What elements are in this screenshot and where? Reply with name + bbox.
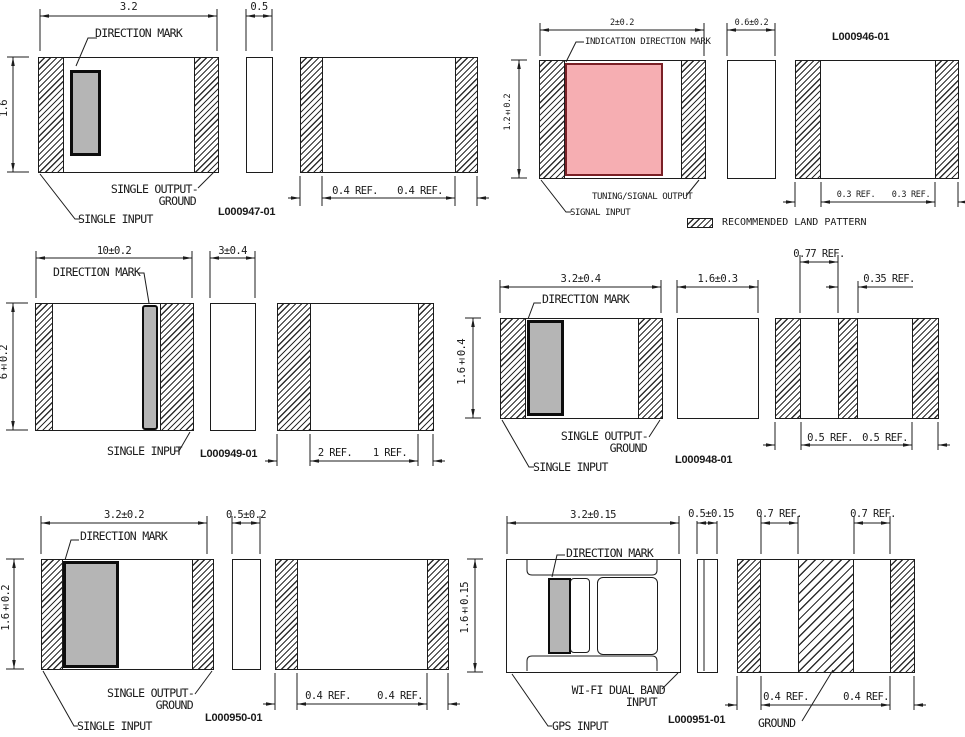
l000951-side-dim: 0.5±0.15 [683,508,739,520]
l000951-side-view [697,559,718,673]
land-pattern-legend-swatch [687,218,713,228]
l000948-land-pad-left [775,318,801,419]
l000951-land-pad-left [737,559,761,673]
l000947-input-label: SINGLE INPUT [78,213,153,226]
l000950-direction-mark-label: DIRECTION MARK [80,530,167,543]
l000949-input-label: SINGLE INPUT [107,445,182,458]
l000947-height-dim: 1.6 [0,100,10,117]
l000951-height-dim: 1.6±0.15 [459,582,471,633]
l000950-terminal-pad-right [192,559,214,670]
l000946-side-dim: 0.6±0.2 [727,18,776,28]
l000951-direction-mark-label: DIRECTION MARK [566,547,653,560]
l000950-width-dim: 3.2±0.2 [41,509,207,521]
l000949-land-pad-right [418,303,434,431]
l000947-width-dim: 3.2 [40,1,217,13]
l000951-land-dim-left: 0.4 REF. [761,691,811,703]
l000946-input-label: SIGNAL INPUT [570,208,630,218]
l000947-side-view [246,57,273,173]
l000951-land-pad-right [890,559,915,673]
land-pattern-legend-label: RECOMMENDED LAND PATTERN [722,217,867,228]
l000948-land-gap-dim: 0.77 REF. [785,248,853,260]
l000947-direction-mark [70,70,101,156]
l000946-terminal-pad-left [539,60,565,179]
l000948-land-pad-middle [838,318,858,419]
l000947-land-dim-left: 0.4 REF. [325,185,385,197]
l000950-land-pad-right [427,559,449,670]
l000951-land-gap-dim-left: 0.7 REF. [755,508,803,520]
l000950-side-dim: 0.5±0.2 [219,509,273,521]
l000948-direction-mark [527,320,564,416]
l000951-body-window-narrow [570,578,590,653]
l000946-direction-mark-label: INDICATION DIRECTION MARK [585,37,710,47]
l000946-land-dim-left: 0.3 REF. [832,190,880,200]
l000947-direction-mark-label: DIRECTION MARK [95,27,182,40]
l000951-land-pad-ground [798,559,854,673]
l000949-direction-mark [142,305,158,430]
l000949-terminal-pad-left [35,303,53,431]
l000946-land-pad-left [795,60,821,179]
l000947-part-number: L000947-01 [218,206,275,218]
l000949-land-dim-left: 2 REF. [310,447,360,459]
l000951-land-gap-dim-right: 0.7 REF. [849,508,897,520]
l000951-gps-input-label: GPS INPUT [552,720,608,733]
l000948-side-view [677,318,759,419]
l000949-land-dim-right: 1 REF. [365,447,415,459]
l000946-side-view [727,60,776,179]
l000950-land-dim-left: 0.4 REF. [303,690,353,702]
l000946-terminal-pad-right [681,60,706,179]
l000947-terminal-pad-left [38,57,64,173]
l000948-height-dim: 1.6±0.4 [456,339,468,385]
l000946-land-pad-right [935,60,959,179]
l000947-body-view [38,57,219,173]
l000951-ground-label: GROUND [758,717,795,730]
l000948-direction-mark-label: DIRECTION MARK [542,293,629,306]
l000951-land-dim-right: 0.4 REF. [841,691,891,703]
l000946-output-label: TUNING/SIGNAL OUTPUT [592,192,692,202]
l000949-part-number: L000949-01 [200,448,257,460]
l000950-side-view [232,559,261,670]
l000951-width-dim: 3.2±0.15 [507,509,679,521]
datasheet-drawing-sheet: 3.2 0.5 1.6 DIRECTION MARK SINGLE OUTPUT… [0,0,965,737]
l000948-part-number: L000948-01 [675,454,732,466]
l000949-land-pad-left [277,303,311,431]
l000950-direction-mark [63,561,119,668]
l000950-input-label: SINGLE INPUT [77,720,152,733]
l000946-indication-direction-mark [565,63,663,176]
l000950-land-pad-left [275,559,298,670]
l000948-side-dim: 1.6±0.3 [677,273,758,285]
l000951-direction-mark [548,578,571,654]
l000947-land-dim-right: 0.4 REF. [390,185,450,197]
l000950-part-number: L000950-01 [205,712,262,724]
l000946-width-dim: 2±0.2 [540,18,704,28]
l000949-side-dim: 3±0.4 [210,245,255,257]
l000946-land-dim-right: 0.3 REF. [887,190,935,200]
l000947-side-dim: 0.5 [240,1,278,13]
l000947-land-pad-left [300,57,323,173]
l000950-ground-label: GROUND [107,699,193,712]
l000947-ground-label: GROUND [110,195,196,208]
l000948-land-dim-left: 0.5 REF. [805,432,855,444]
l000948-land-middle-dim: 0.35 REF. [860,273,918,285]
l000951-body-window-wide [597,577,658,655]
l000950-land-dim-right: 0.4 REF. [375,690,425,702]
l000948-width-dim: 3.2±0.4 [500,273,661,285]
l000951-part-number: L000951-01 [668,714,725,726]
l000950-land-pattern [275,559,449,670]
l000947-land-pattern [300,57,478,173]
l000948-input-label: SINGLE INPUT [533,461,608,474]
l000947-terminal-pad-right [194,57,219,173]
l000949-height-dim: 6±0.2 [0,345,10,379]
l000946-part-number: L000946-01 [832,31,889,43]
l000948-land-dim-right: 0.5 REF. [860,432,910,444]
l000949-direction-mark-label: DIRECTION MARK [53,266,140,279]
l000948-terminal-pad-right [638,318,663,419]
l000949-width-dim: 10±0.2 [36,245,192,257]
l000949-side-view [210,303,256,431]
l000948-ground-label: GROUND [560,442,647,455]
l000950-height-dim: 1.6±0.2 [0,585,12,631]
l000946-height-dim: 1.2±0.2 [503,94,513,131]
l000948-terminal-pad-left [500,318,526,419]
l000949-terminal-pad-right [160,303,194,431]
l000947-land-pad-right [455,57,478,173]
l000948-land-pad-right [912,318,939,419]
l000950-terminal-pad-left [41,559,63,670]
l000951-wifi-input-label-2: INPUT [560,696,657,709]
